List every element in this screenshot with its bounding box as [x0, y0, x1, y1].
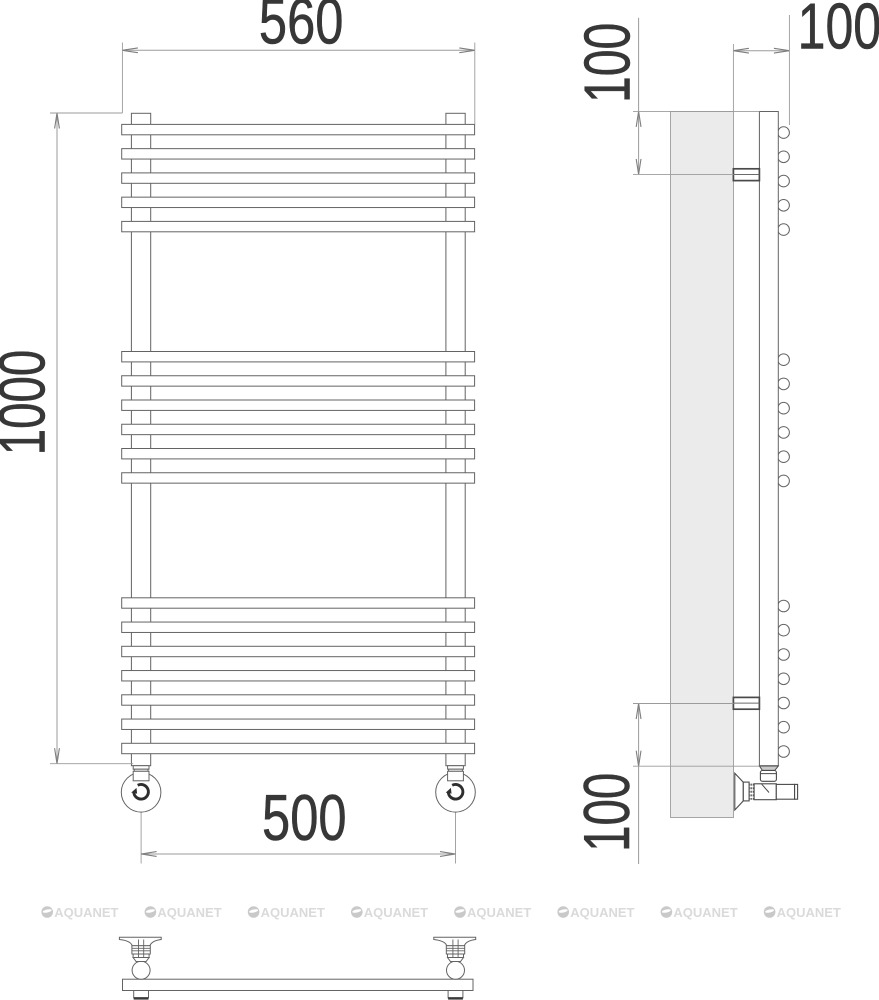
svg-text:560: 560: [259, 0, 344, 58]
svg-text:AQUANET: AQUANET: [261, 905, 325, 920]
svg-text:AQUANET: AQUANET: [467, 905, 531, 920]
svg-text:100: 100: [571, 773, 644, 852]
svg-text:AQUANET: AQUANET: [364, 905, 428, 920]
svg-text:100: 100: [798, 0, 879, 63]
svg-text:AQUANET: AQUANET: [673, 905, 737, 920]
svg-text:AQUANET: AQUANET: [777, 905, 841, 920]
svg-text:AQUANET: AQUANET: [570, 905, 634, 920]
svg-text:AQUANET: AQUANET: [54, 905, 118, 920]
svg-text:AQUANET: AQUANET: [157, 905, 221, 920]
svg-text:500: 500: [262, 782, 347, 854]
svg-text:1000: 1000: [0, 350, 59, 456]
svg-text:100: 100: [571, 23, 644, 103]
